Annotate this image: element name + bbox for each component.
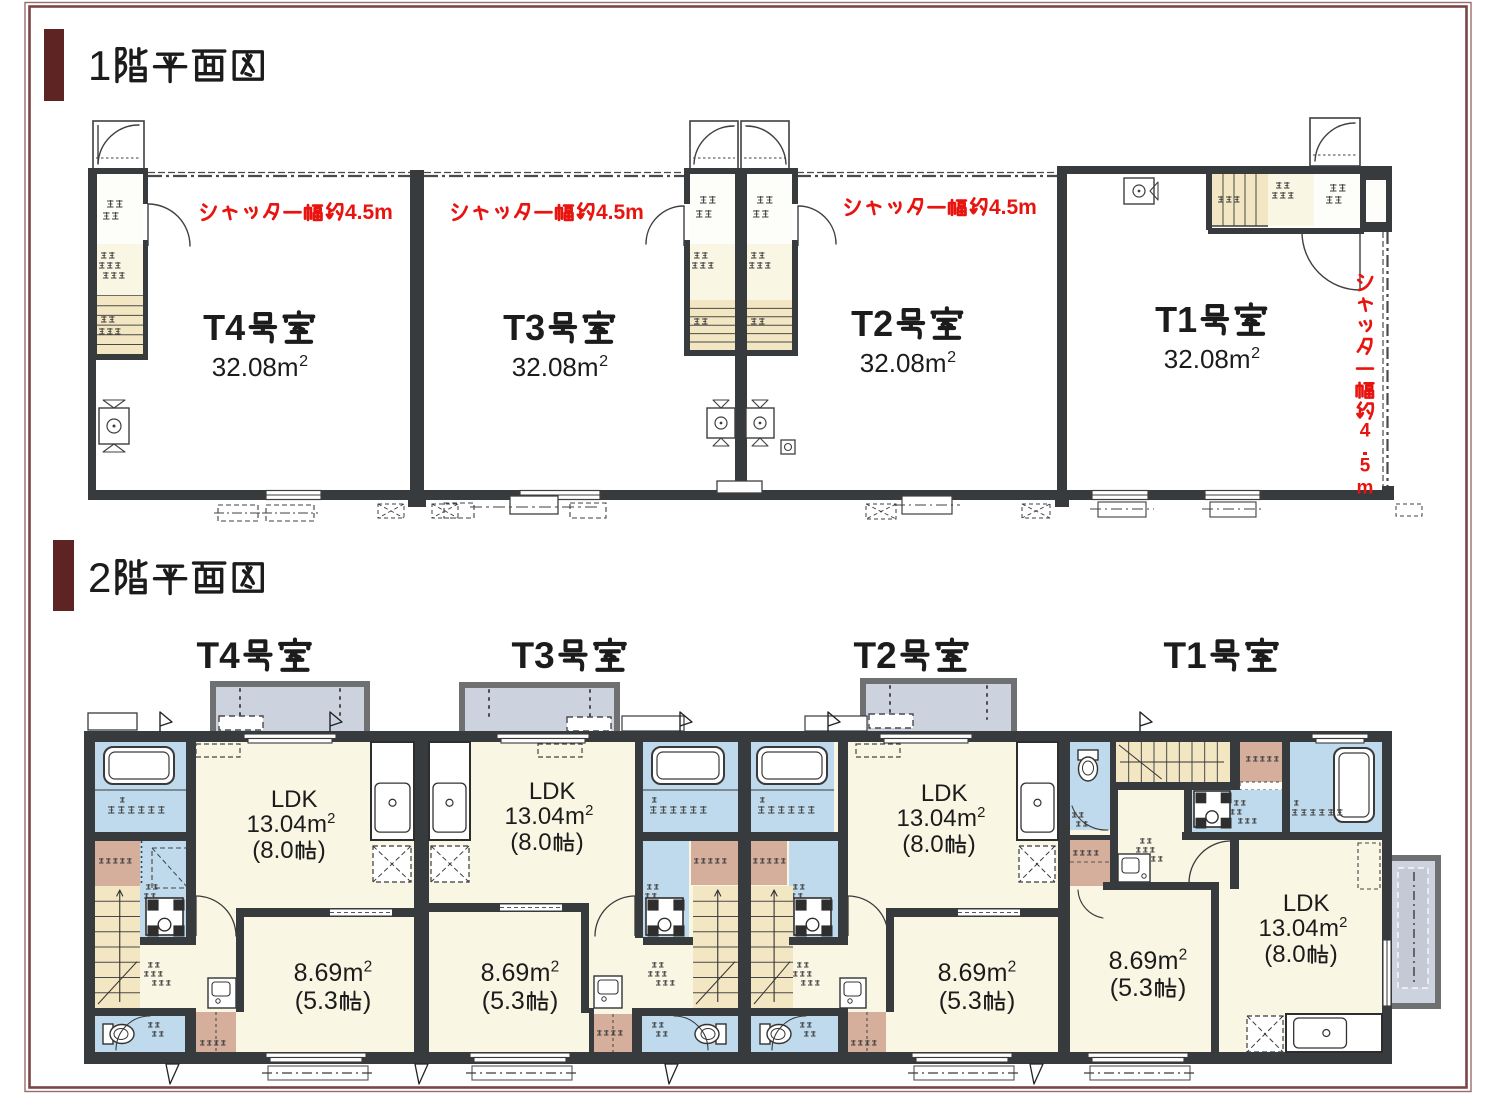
svg-text:8.69: 8.69 xyxy=(938,959,987,987)
svg-text:(8.0: (8.0 xyxy=(902,831,943,858)
svg-text:): ) xyxy=(968,831,976,858)
svg-text:2: 2 xyxy=(551,959,560,976)
svg-text:4.5m: 4.5m xyxy=(345,201,393,224)
svg-text:m: m xyxy=(307,811,327,838)
svg-text:2: 2 xyxy=(299,352,308,370)
svg-text:): ) xyxy=(1178,974,1186,1002)
svg-text:T3: T3 xyxy=(512,635,555,676)
svg-text:13.04: 13.04 xyxy=(505,803,565,830)
svg-text:): ) xyxy=(576,829,584,856)
svg-text:(5.3: (5.3 xyxy=(939,987,982,1015)
svg-text:): ) xyxy=(318,837,326,864)
svg-text:m: m xyxy=(1319,915,1339,942)
svg-text:8.69: 8.69 xyxy=(294,959,343,987)
svg-text:T2: T2 xyxy=(854,635,897,676)
svg-text:2: 2 xyxy=(1008,959,1017,976)
svg-text:): ) xyxy=(1330,941,1338,968)
svg-text:(8.0: (8.0 xyxy=(252,837,293,864)
svg-text:m: m xyxy=(565,803,585,830)
svg-text:32.08m: 32.08m xyxy=(212,352,299,382)
svg-text:13.04: 13.04 xyxy=(1259,915,1319,942)
svg-text:m: m xyxy=(343,959,364,987)
svg-text:T4: T4 xyxy=(197,635,241,676)
svg-text:m: m xyxy=(957,805,977,832)
svg-text:): ) xyxy=(363,987,371,1015)
svg-text:(5.3: (5.3 xyxy=(295,987,338,1015)
svg-text:T1: T1 xyxy=(1164,635,1207,676)
svg-text:LDK: LDK xyxy=(921,780,968,807)
svg-text:2: 2 xyxy=(947,348,956,366)
svg-text:32.08m: 32.08m xyxy=(1164,344,1251,374)
svg-text:4: 4 xyxy=(1360,421,1371,442)
svg-text:m: m xyxy=(1357,478,1374,499)
svg-text:2: 2 xyxy=(364,959,373,976)
svg-text:2: 2 xyxy=(1339,915,1347,931)
svg-text:13.04: 13.04 xyxy=(247,811,307,838)
svg-text:2: 2 xyxy=(977,805,985,821)
svg-text:13.04: 13.04 xyxy=(897,805,957,832)
svg-text:T4: T4 xyxy=(203,307,245,348)
svg-text:2: 2 xyxy=(1251,344,1260,362)
svg-text:(8.0: (8.0 xyxy=(510,829,551,856)
svg-text:(5.3: (5.3 xyxy=(1110,974,1153,1002)
svg-text:): ) xyxy=(1007,987,1015,1015)
svg-text:m: m xyxy=(530,959,551,987)
svg-text:T2: T2 xyxy=(851,303,893,344)
svg-text:2: 2 xyxy=(585,803,593,819)
svg-text:(8.0: (8.0 xyxy=(1264,941,1305,968)
svg-text:T1: T1 xyxy=(1155,299,1197,340)
svg-text:LDK: LDK xyxy=(529,778,576,805)
svg-text:32.08m: 32.08m xyxy=(860,348,947,378)
svg-text:m: m xyxy=(987,959,1008,987)
svg-text:LDK: LDK xyxy=(271,786,318,813)
svg-text:8.69: 8.69 xyxy=(1109,947,1158,975)
svg-text:2: 2 xyxy=(599,352,608,370)
svg-text:m: m xyxy=(1158,947,1179,975)
svg-text:4.5m: 4.5m xyxy=(989,196,1037,219)
svg-text:32.08m: 32.08m xyxy=(512,352,599,382)
svg-text:T3: T3 xyxy=(503,307,545,348)
svg-text:2: 2 xyxy=(327,811,335,827)
svg-text:): ) xyxy=(550,987,558,1015)
svg-text:2: 2 xyxy=(88,554,111,601)
svg-text:4.5m: 4.5m xyxy=(596,201,644,224)
svg-text:5: 5 xyxy=(1360,456,1371,477)
svg-text:LDK: LDK xyxy=(1283,890,1330,917)
svg-text:1: 1 xyxy=(88,42,111,89)
svg-text:8.69: 8.69 xyxy=(481,959,530,987)
svg-text:2: 2 xyxy=(1179,947,1188,964)
svg-text:(5.3: (5.3 xyxy=(482,987,525,1015)
